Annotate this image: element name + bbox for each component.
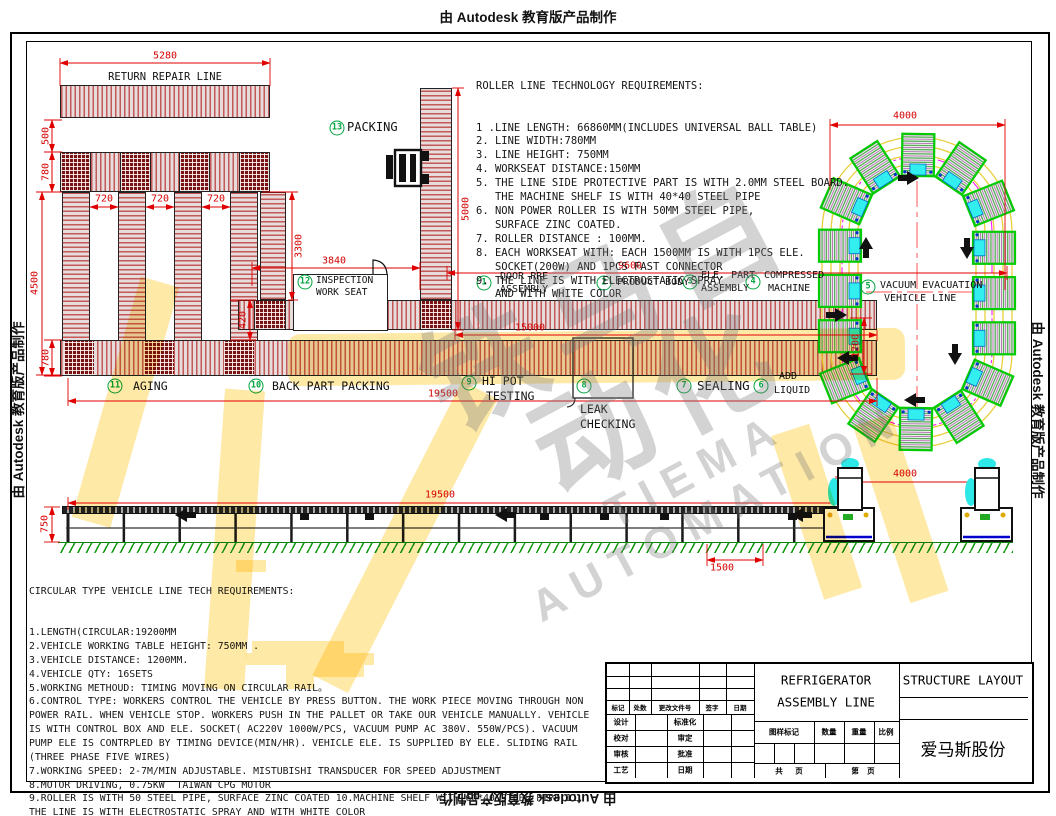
req-line: 7.WORKING SPEED: 2-7M/MIN ADJUSTABLE. MI… [29,765,589,779]
rev-header-cell: 更改文件号 [659,702,692,712]
mid-header-cell: 重量 [852,727,867,738]
req-line: 2. LINE WIDTH:780MM [476,135,849,149]
req-line: SOCKET(200W) AND 1PCS FAST CONNECTOR [476,261,849,275]
dim-19500-plan: 19500 [428,389,458,400]
vehicle-pallet [820,358,871,403]
dim-5280: 5280 [153,51,177,62]
role-label: 工艺 [614,765,629,776]
req-line: 7. ROLLER DISTANCE : 100MM. [476,233,849,247]
req-line: SURFACE ZINC COATED. [476,219,849,233]
req-line: PUMP ELE IS CONTRPLED BY TIMING DEVICE(M… [29,737,589,751]
req-line: (THREE PHASE FIVE WIRES) [29,751,589,765]
vacuum-machine-2 [961,458,1012,541]
divider [899,664,900,778]
rev-header-cell: 签字 [706,702,719,712]
station-11-label: AGING [133,379,168,393]
station-9-number: 9 [462,376,477,391]
station-13-number: 13 [330,121,345,136]
line [731,714,732,778]
role-label: 日期 [678,765,693,776]
company-name: 爱马斯股份 [921,736,1006,761]
req-line: 8. EACH WORKSEAT WITH: EACH 1500MM IS WI… [476,247,849,261]
product-name-line1: REFRIGERATOR [781,673,871,688]
vehicle-pallet [973,232,1015,264]
station-5-label: VACUUM EVACUATION [880,280,982,291]
line [814,721,815,763]
req-line: 3.VEHICLE DISTANCE: 1200MM. [29,654,589,668]
req-line: 6.CONTROL TYPE: WORKERS CONTROL THE VEHI… [29,695,589,709]
req-line: THE MACHINE SHELF IS WITH 40*40 STEEL PI… [476,191,849,205]
dim-4500: 4500 [30,271,41,295]
req-line: 1 .LINE LENGTH: 66860MM(INCLUDES UNIVERS… [476,122,849,136]
station-12-label: INSPECTION [316,275,373,286]
dim-750: 750 [40,515,51,533]
autodesk-banner-left: 由 Autodesk 教育版产品制作 [7,321,27,498]
req-line: POWER RAIL. WHEN VEHICLE STOP. WORKERS P… [29,709,589,723]
dim-1500: 1500 [710,563,734,574]
vehicle-pallet [902,134,935,176]
req-line: THE LINE IS WITH ELECTROSTATIC SPRAY AND… [29,806,589,816]
req-line: 4.VEHICLE QTY: 16SETS [29,668,589,682]
roller-line-requirements: ROLLER LINE TECHNOLOGY REQUIREMENTS: 1 .… [476,52,849,330]
station-7-label: SEALING [697,378,750,393]
line [629,664,630,714]
packing-machine-icon [386,150,429,186]
dim-720: 720 [151,194,169,205]
req-line: 4. WORKSEAT DISTANCE:150MM [476,163,849,177]
role-label: 标准化 [674,717,697,728]
req-line: AND WITH WHITE COLOR [476,288,849,302]
dim-3840: 3840 [322,256,346,267]
req-line: 9.ROLLER IS WITH 50 STEEL PIPE, SURFACE … [29,792,589,806]
line [754,763,899,764]
req-line: 5. THE LINE SIDE PROTECTIVE PART IS WITH… [476,177,849,191]
dim-780-bottom: 780 [41,349,52,367]
pages-left: 共 页 [775,766,803,777]
rev-header-cell: 标记 [612,702,625,712]
line [754,743,899,744]
role-label: 设计 [614,717,629,728]
dim-720: 720 [95,194,113,205]
station-12-label2: WORK SEAT [316,287,367,298]
arrow-left-icon [175,508,196,522]
station-11-number: 11 [108,379,123,394]
line [874,721,875,763]
line [754,721,899,722]
leak-checking-label: LEAK [580,402,608,416]
dim-3300: 3300 [294,234,305,258]
circular-line-requirements: CIRCULAR TYPE VEHICLE LINE TECH REQUIREM… [29,557,589,816]
dim-4000-oval: 4000 [893,111,917,122]
leak-box-tail [567,398,575,407]
req-line: 1.LENGTH(CIRCULAR:19200MM [29,626,589,640]
mid-header-cell: 图样标记 [769,727,799,738]
line [699,664,700,714]
pages-right: 第 页 [851,766,874,777]
vehicle-pallet [973,322,1015,354]
vehicle-pallet [900,408,933,450]
line [635,714,636,778]
doc-title: STRUCTURE LAYOUT [903,673,1023,688]
station-9-label: HI POT [482,374,524,388]
req-line: 5.WORKING METHOUD: TIMING MOVING ON CIRC… [29,682,589,696]
station-12-number: 12 [298,275,313,290]
line [651,664,652,714]
station-8-number: 8 [577,379,592,394]
dim-4000-elev: 4000 [893,469,917,480]
dim-19500-elev: 19500 [425,490,455,501]
dim-5000: 5000 [461,197,472,221]
autodesk-banner-top: 由 Autodesk 教育版产品制作 [439,6,616,26]
autodesk-banner-right: 由 Autodesk 教育版产品制作 [1029,321,1049,498]
station-6-label: ADD [779,371,797,382]
pallet-tabs [300,514,797,520]
line [667,714,668,778]
line [726,664,727,714]
dim-720: 720 [207,194,225,205]
vacuum-machine-1 [824,458,874,541]
line [899,719,1028,720]
line [774,743,775,763]
req-line: 8.MOTOR DRIVING, 0.75KW TAIWAN CPG MOTOR [29,779,589,793]
line [794,743,795,763]
vehicle-pallet [962,360,1013,406]
arrow-down-icon [948,344,962,365]
req-line: 2.VEHICLE WORKING TABLE HEIGHT: 750MM . [29,640,589,654]
door-swing-arc [373,260,387,274]
line [899,697,1028,698]
station-10-number: 10 [249,379,264,394]
role-label: 校对 [614,733,629,744]
station-9-label2: TESTING [486,389,534,403]
leak-checking-label2: CHECKING [580,417,635,431]
line [844,721,845,763]
req-line: 9. THE LINE IS WITH ELECTROSTATIC SPRAY [476,275,849,289]
title-block: 标记 处数 更改文件号 签字 日期 设计 标准化 校对 审定 审核 批准 工艺 … [605,662,1034,784]
circ-req-title: CIRCULAR TYPE VEHICLE LINE TECH REQUIREM… [29,585,589,599]
return-repair-line-label: RETURN REPAIR LINE [108,71,222,83]
dim-1200: 1200 [851,334,862,358]
line [825,763,826,778]
arrow-left-icon [495,508,516,522]
roller-req-lines: 1 .LINE LENGTH: 66860MM(INCLUDES UNIVERS… [476,122,849,303]
circ-req-lines: 1.LENGTH(CIRCULAR:19200MM2.VEHICLE WORKI… [29,626,589,816]
role-label: 审核 [614,749,629,760]
line [703,714,704,778]
station-6-number: 6 [754,379,769,394]
station-5-number: 5 [861,280,876,295]
rev-header-cell: 日期 [734,702,747,712]
station-5-label2: VEHICLE LINE [884,293,956,304]
rev-header-cell: 处数 [634,702,647,712]
station-7-number: 7 [677,379,692,394]
dim-420: 420 [238,311,249,329]
product-name-line2: ASSEMBLY LINE [777,695,875,710]
station-13-label: PACKING [347,120,398,134]
mid-header-cell: 比例 [879,727,894,738]
cad-drawing-page: 由 Autodesk 教育版产品制作 由 Autodesk 教育版产品制作 由 … [0,0,1056,816]
station-10-label: BACK PART PACKING [272,379,390,393]
role-label: 批准 [678,749,693,760]
role-label: 审定 [678,733,693,744]
dim-500: 500 [41,127,52,145]
roller-req-title: ROLLER LINE TECHNOLOGY REQUIREMENTS: [476,80,849,94]
vehicle-pallet [963,181,1014,226]
dim-780-top: 780 [41,163,52,181]
mid-header-cell: 数量 [822,727,837,738]
req-line: 6. NON POWER ROLLER IS WITH 50MM STEEL P… [476,205,849,219]
req-line: IS WITH CONTROL BOX AND ELE. SOCKET( AC2… [29,723,589,737]
station-6-label2: LIQUID [774,385,810,396]
arrow-left-icon [904,393,925,407]
req-line: 3. LINE HEIGHT: 750MM [476,149,849,163]
